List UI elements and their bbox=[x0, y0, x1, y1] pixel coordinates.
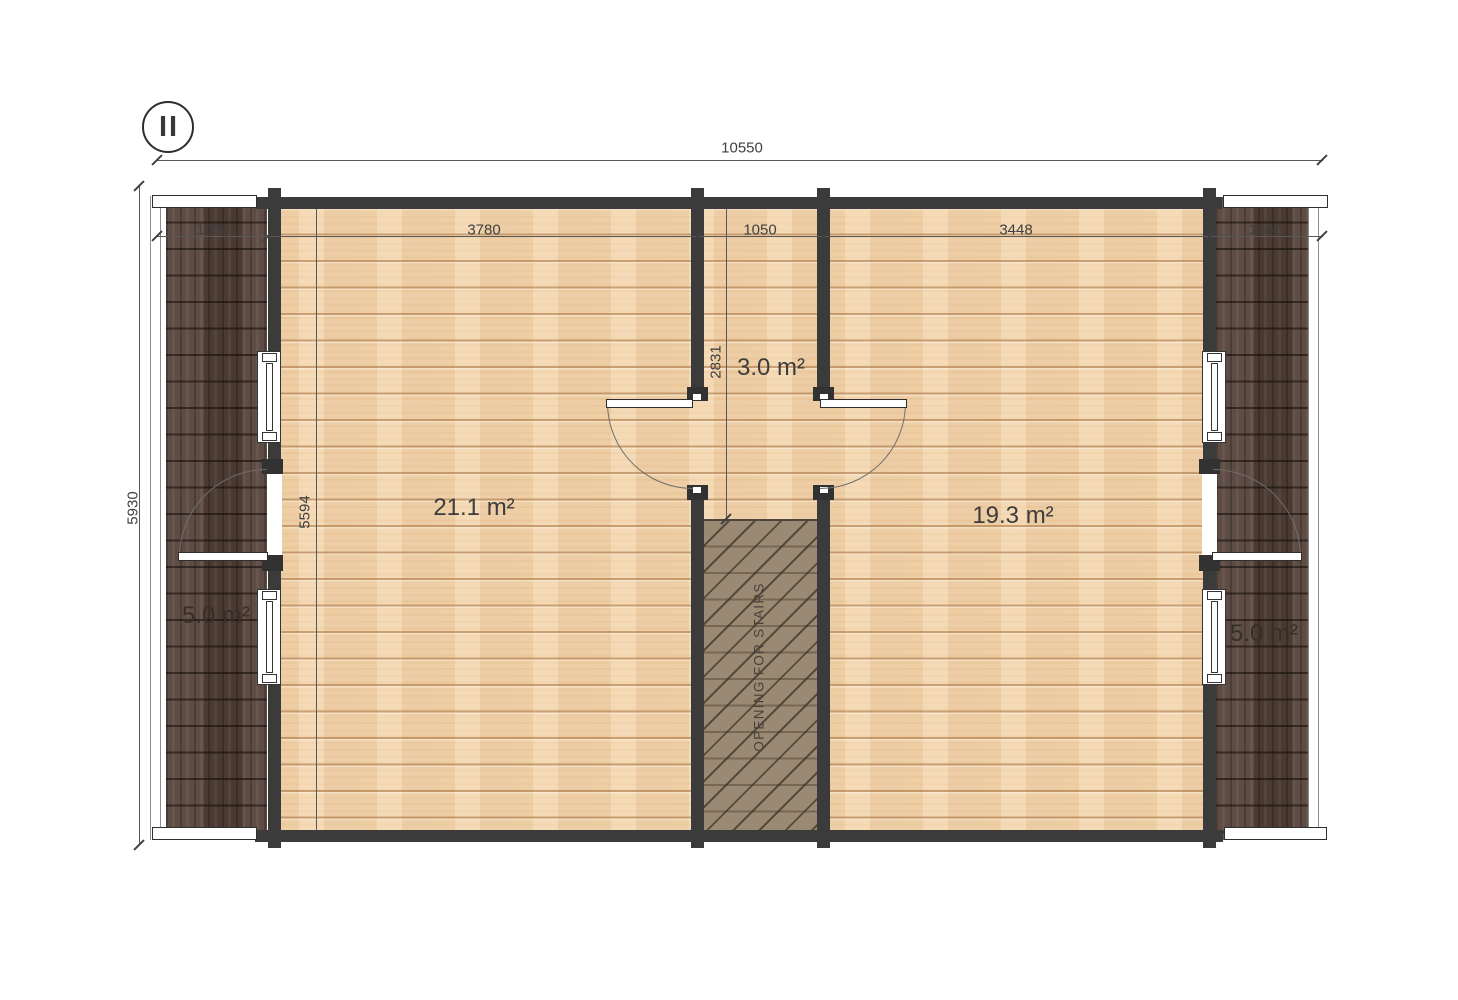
wall-hall-right-lower bbox=[817, 500, 830, 848]
wall-bottom bbox=[255, 830, 1223, 842]
left-balcony-area-label: 5.0 m² bbox=[182, 602, 250, 630]
hallway-area-label: 3.0 m² bbox=[737, 354, 805, 382]
floor-level-badge: II bbox=[142, 101, 194, 153]
left-balcony-door-opening bbox=[267, 474, 282, 555]
wall-hall-left-upper bbox=[691, 188, 704, 388]
window-glass bbox=[266, 601, 273, 673]
dimension-line-overall-width bbox=[157, 160, 1323, 161]
left-room-area-label: 21.1 m² bbox=[433, 494, 514, 522]
window bbox=[1202, 351, 1226, 443]
dimension-line-width-segments bbox=[157, 236, 1323, 237]
right-balcony-rail-top bbox=[1223, 195, 1328, 208]
window bbox=[257, 351, 281, 443]
left-balcony-rail-top bbox=[152, 195, 257, 208]
dimension-line-hallway-depth bbox=[726, 209, 727, 519]
dimension-label-hallway-depth: 2831 bbox=[708, 345, 725, 378]
stairs-opening-label: OPENING FOR STAIRS bbox=[752, 582, 767, 751]
right-balcony-door-leaf bbox=[1212, 552, 1302, 561]
window bbox=[257, 589, 281, 685]
dimension-label-segment-4: 3448 bbox=[999, 222, 1032, 239]
window-cap bbox=[1207, 674, 1222, 683]
window-glass bbox=[1211, 363, 1218, 431]
window-cap bbox=[1207, 591, 1222, 600]
right-balcony-area-label: 5.0 m² bbox=[1230, 620, 1298, 648]
floor-level-label: II bbox=[159, 111, 179, 144]
left-balcony-rail-side bbox=[150, 196, 161, 840]
wall-top bbox=[255, 197, 1222, 209]
left-room-door-leaf bbox=[606, 399, 693, 408]
window-glass bbox=[266, 363, 273, 431]
left-balcony-door-leaf bbox=[178, 552, 268, 561]
dimension-label-segment-3: 1050 bbox=[743, 222, 776, 239]
window-cap bbox=[262, 674, 277, 683]
window-cap bbox=[262, 591, 277, 600]
dimension-label-segment-2: 3780 bbox=[467, 222, 500, 239]
dimension-line-interior-depth bbox=[316, 209, 317, 831]
dimension-label-overall-depth: 5930 bbox=[125, 491, 142, 524]
wall-hall-left-lower bbox=[691, 500, 704, 848]
window-cap bbox=[262, 432, 277, 441]
door-hinge-notch bbox=[692, 486, 702, 494]
dimension-label-segment-1: 1000 bbox=[196, 222, 229, 239]
right-room-door-leaf bbox=[820, 399, 907, 408]
window-cap bbox=[262, 353, 277, 362]
dimension-label-interior-depth: 5594 bbox=[297, 495, 314, 528]
floor-plan-canvas: II bbox=[0, 0, 1458, 1000]
right-balcony-rail-side bbox=[1308, 196, 1319, 840]
left-balcony-rail-bottom bbox=[152, 827, 257, 840]
dimension-label-segment-5: 1000 bbox=[1248, 222, 1281, 239]
dimension-label-overall-width: 10550 bbox=[721, 140, 763, 157]
window-glass bbox=[1211, 601, 1218, 673]
window-cap bbox=[1207, 353, 1222, 362]
door-hinge-notch bbox=[692, 393, 702, 401]
window bbox=[1202, 589, 1226, 685]
wall-hall-right-upper bbox=[817, 188, 830, 388]
window-cap bbox=[1207, 432, 1222, 441]
right-balcony-rail-bottom bbox=[1224, 827, 1327, 840]
right-room-area-label: 19.3 m² bbox=[972, 502, 1053, 530]
